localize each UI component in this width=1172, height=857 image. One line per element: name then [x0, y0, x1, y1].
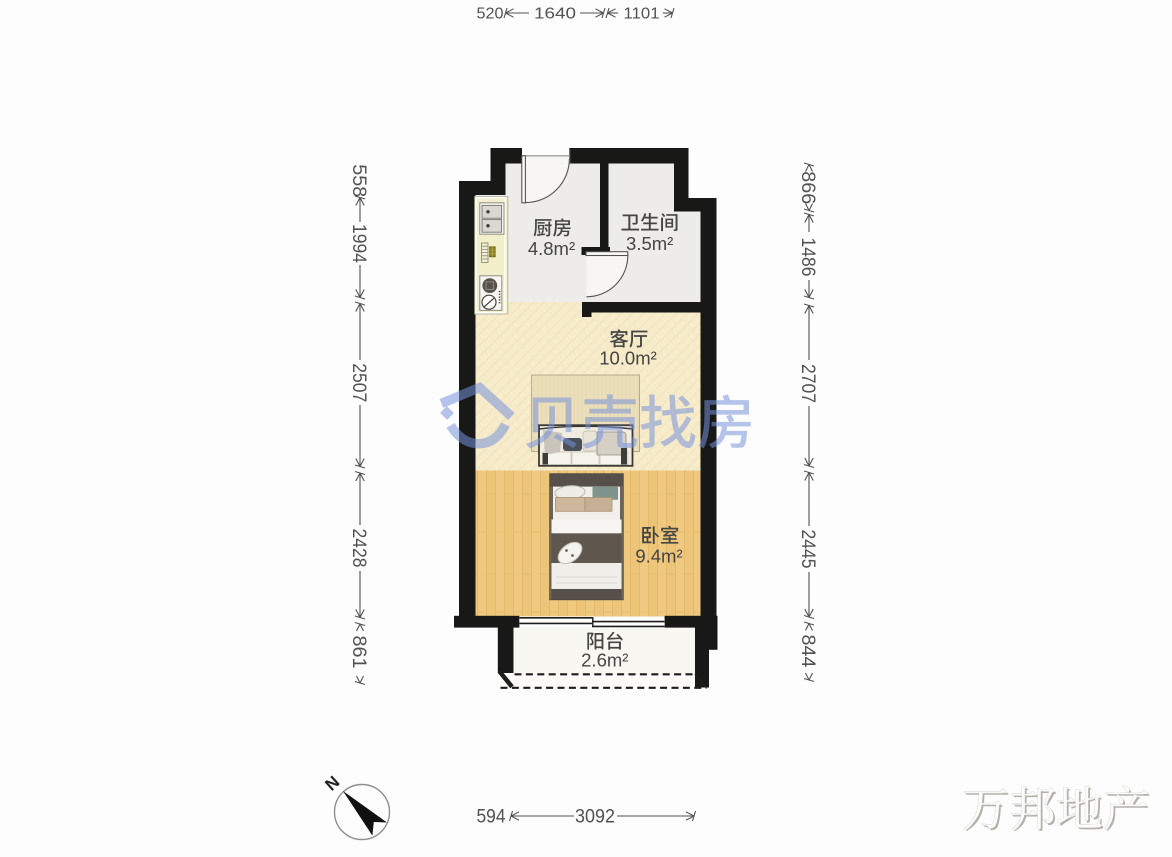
svg-text:861: 861 [348, 636, 369, 669]
svg-text:10.0m²: 10.0m² [599, 347, 657, 368]
svg-text:3.5m²: 3.5m² [626, 233, 673, 254]
svg-text:1101: 1101 [624, 5, 660, 22]
svg-text:1994: 1994 [348, 224, 369, 263]
svg-text:9.4m²: 9.4m² [635, 545, 682, 566]
svg-text:3092: 3092 [575, 806, 615, 827]
svg-text:594: 594 [477, 806, 506, 827]
svg-text:2707: 2707 [797, 364, 818, 403]
svg-text:866: 866 [797, 171, 818, 204]
svg-text:1640: 1640 [534, 5, 576, 22]
svg-text:2428: 2428 [348, 529, 369, 568]
svg-text:844: 844 [797, 635, 818, 668]
svg-text:2445: 2445 [797, 530, 818, 569]
svg-text:2.6m²: 2.6m² [581, 649, 628, 670]
svg-text:1486: 1486 [797, 238, 818, 277]
svg-text:4.8m²: 4.8m² [528, 238, 575, 259]
svg-text:2507: 2507 [348, 363, 369, 402]
svg-text:558: 558 [348, 164, 369, 197]
svg-text:520: 520 [477, 5, 504, 22]
